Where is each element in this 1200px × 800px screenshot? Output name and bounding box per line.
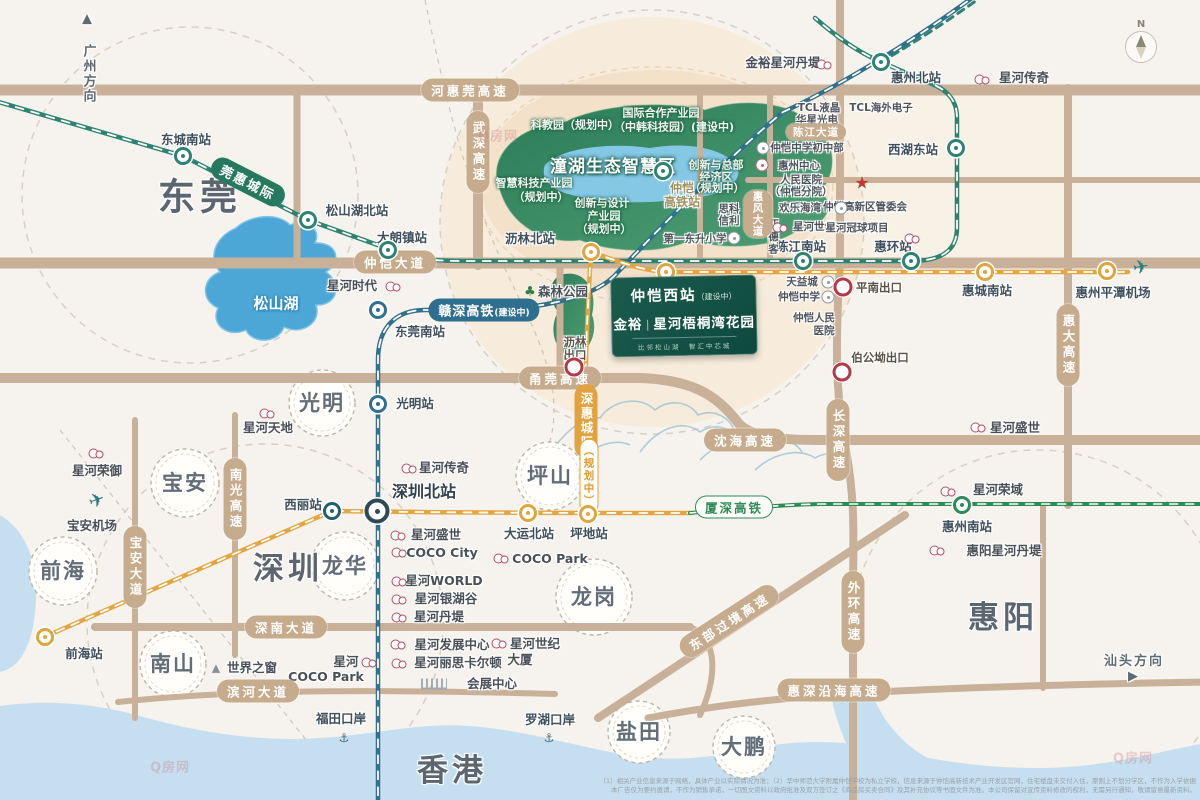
station-label-xihudong: 西湖东站: [888, 143, 938, 157]
poi-xinghe-coco-2: COCO Park: [288, 670, 364, 684]
xinghe-logo: [773, 222, 788, 233]
xinghe-logo: [362, 657, 377, 668]
city-longgang: 龙岗: [571, 585, 617, 609]
exit-dot-lilin: [565, 358, 584, 377]
songshan-lake: [205, 217, 336, 341]
poi-xinghe-chuanqi-top: 星河传奇: [999, 71, 1049, 85]
poi-xinghe-shidai: 星河时代: [327, 279, 377, 293]
city-pingshan: 坪山: [527, 464, 573, 488]
city-shenzhen: 深圳: [253, 552, 323, 588]
leisure-icon: [835, 202, 848, 215]
poi-zhongkai-renmin-2: 医院: [814, 325, 835, 337]
poi-hospital-3: （仲恺分院）: [770, 186, 833, 198]
poi-xinghe-rongyu: 星河荣御: [72, 464, 122, 478]
zone-intl-1: 国际合作产业园: [623, 108, 700, 121]
poi-diyi-dongsheng: 第一东升小学: [664, 233, 727, 245]
station-label-dongchengnan: 东城南站: [161, 133, 211, 147]
xinghe-logo: [392, 547, 407, 558]
road-hehuiwan-expwy: 河惠莞高速: [421, 79, 519, 102]
poi-xinghe-coco-1: 星河: [333, 655, 358, 669]
station-songshanhubei: [299, 211, 317, 229]
disclaimer-line2: 本广告仅为要约邀请，不作为销售承诺，一切图文资料以政府批准及双方签订之《商品房买…: [156, 786, 1196, 796]
station-dongchengnan: [174, 147, 192, 165]
xinghe-logo: [941, 486, 956, 497]
station-dayunbei: [519, 504, 537, 522]
school-icon: [757, 142, 770, 155]
station-guangming: [369, 395, 387, 413]
disclaimer: （1）相关产业信息来源于网络，具体产业以实际情况为准；（2）华中师范大学附属仲恺…: [156, 777, 1196, 797]
project-slogan: 比邻松山湖 智汇中芯城: [613, 339, 757, 352]
poi-huiyang-xinghe-danti: 惠阳星河丹堤: [966, 544, 1041, 558]
rail-ganshen-hsr: 赣深高铁(建设中): [428, 299, 539, 322]
station-huihuan: [902, 252, 920, 270]
poi-xinghe-tiandi: 星河天地: [243, 421, 293, 435]
zone-design-1: 创新与设计: [575, 198, 630, 211]
poi-forest-park: 森林公园: [538, 285, 588, 299]
poi-xinghe-shengshi-hz: 星河盛世: [990, 421, 1040, 435]
expo-building-icon: [421, 679, 447, 690]
label-luohu-port: 罗湖口岸: [525, 713, 575, 727]
xinghe-logo: [492, 638, 507, 649]
poi-xinghe-world: 星河WORLD: [405, 574, 482, 588]
city-longhua: 龙华: [322, 554, 368, 578]
xinghe-logo: [975, 74, 990, 85]
poi-xinghe-shiji-sz: 星河世纪: [510, 637, 560, 651]
xinghe-logo: [392, 576, 407, 587]
station-label-dayunbei: 大运北站: [504, 527, 554, 541]
poi-ritz-carlton: 星河丽思卡尔顿: [414, 656, 502, 670]
label-huizhou-pingtan-airport: 惠州平潭机场: [1075, 286, 1150, 300]
station-label-shenzhenbei: 深圳北站: [392, 483, 456, 501]
poi-expo-center: 会展中心: [467, 677, 517, 691]
xinghe-logo: [402, 463, 417, 474]
tree-icon: ♣: [524, 286, 536, 299]
station-label-huizhounan: 惠州南站: [942, 520, 992, 534]
road-huifeng-ave: 惠风大道: [744, 190, 773, 238]
station-xili: [323, 502, 341, 520]
watermark: Q房网: [150, 757, 190, 776]
poi-xinghe-yinhugu: 星河银湖谷: [415, 592, 478, 606]
poi-tianyicheng: 天益城: [786, 276, 818, 288]
road-changshen-expwy: 长深高速: [827, 399, 850, 481]
station-label-huichengnan: 惠城南站: [962, 284, 1012, 298]
station-label-zhongkai-hsr: 仲恺 高铁站: [664, 182, 700, 210]
station-chenjiangnan: [794, 252, 812, 270]
project-brand: 金裕星河梧桐湾花园: [612, 310, 756, 333]
project-station: 仲恺西站（建设中）: [611, 282, 755, 306]
road-binhe-ave: 滨河大道: [217, 680, 299, 703]
poi-huanle-haiwan: 欢乐海湾: [779, 202, 821, 214]
city-huiyang: 惠阳: [968, 601, 1038, 637]
xinghe-logo: [386, 281, 401, 292]
disclaimer-line1: （1）相关产业信息来源于网络，具体产业以实际情况为准；（2）华中师范大学附属仲恺…: [156, 777, 1196, 787]
poi-baoan-airport: 宝安机场: [67, 519, 117, 533]
poi-window-of-world: 世界之窗: [227, 661, 277, 675]
zone-design-2: 产业园: [588, 211, 621, 224]
exit-bogongao: 伯公坳出口: [851, 351, 909, 364]
poi-zhongkai-middle-school-junior: 仲恺中学初中部: [770, 142, 844, 154]
xinghe-logo: [260, 408, 275, 419]
poi-xinghe-chuanqi-mid: 星河传奇: [419, 461, 469, 475]
poi-xinghe-shengshi-sz: 星河盛世: [411, 528, 461, 542]
poi-xinghe-guanqiu: 星河冠球项目: [826, 222, 889, 234]
road-wushen-expwy: 武深高速: [467, 111, 490, 193]
station-dongguannan: [369, 301, 387, 319]
zone-design-3: （规划中）: [577, 224, 632, 237]
city-dapeng: 大鹏: [721, 735, 767, 759]
poi-hospital-1: 惠州中心: [778, 160, 820, 172]
xinghe-logo: [905, 233, 920, 244]
location-map: ▲广州方向汕头方向 ▶东莞深圳惠阳香港光明宝安龙华前海南山坪山龙岗盐田大鹏松山湖…: [0, 0, 1200, 800]
poi-coco-city: COCO City: [406, 546, 478, 560]
road-baoan-ave: 宝安大道: [124, 526, 147, 608]
poi-tcl-overseas: TCL海外电子: [849, 102, 913, 114]
station-lilinbei: [582, 243, 600, 261]
road-huishen-yanhai-expwy: 惠深沿海高速: [777, 679, 890, 702]
poi-xinghe-danti: 星河丹堤: [414, 610, 464, 624]
poi-coco-park-longgang: COCO Park: [512, 552, 588, 566]
label-futian-port: 福田口岸: [316, 712, 366, 726]
road-nanguang-expwy: 南光高速: [224, 458, 247, 540]
city-baoan: 宝安: [162, 471, 208, 495]
poi-jinyu-xinghe-danti: 金裕星河丹堤: [745, 56, 820, 70]
xinghe-logo: [817, 59, 832, 70]
compass: N: [1124, 19, 1158, 65]
station-huizhoubei: [872, 53, 890, 71]
road-waihuan-expwy: 外环高速: [842, 571, 865, 653]
school-icon: [728, 232, 741, 245]
station-label-pingdi: 坪地站: [570, 527, 608, 541]
exit-dot-bogongao: [833, 363, 852, 382]
govt-star-icon: ★: [854, 176, 869, 193]
station-label-huizhoubei: 惠州北站: [891, 71, 941, 85]
xinghe-logo: [391, 639, 406, 650]
pagoda-icon: ▲: [212, 663, 220, 674]
hospital-icon: [756, 159, 769, 172]
poi-sike: 思科: [719, 203, 740, 215]
station-huizhounan: [953, 496, 971, 514]
xinghe-logo: [391, 530, 406, 541]
zone-intl-2: （中韩科技园）(建设中): [614, 122, 734, 135]
poi-tcl-1: TCL液晶: [798, 102, 841, 114]
station-label-qianhai: 前海站: [65, 647, 103, 661]
station-label-dongguannan: 东莞南站: [395, 325, 445, 339]
project-card: 仲恺西站（建设中） 金裕星河梧桐湾花园 比邻松山湖 智汇中芯城: [610, 274, 758, 357]
station-qianhai: [36, 628, 54, 646]
plane-icon: ✈: [1132, 257, 1151, 278]
anchor-icon: ⚓: [544, 732, 555, 744]
compass-dial: [1125, 31, 1157, 63]
city-qianhai: 前海: [40, 559, 86, 583]
road-huida-expwy: 惠大高速: [1057, 304, 1080, 386]
poi-zhongkai-middle-school: 仲恺中学: [778, 291, 820, 303]
poi-zhongkai-renmin-1: 仲恺人民: [793, 312, 835, 324]
station-dalangzhen: [379, 241, 397, 259]
anchor-icon: ⚓: [339, 732, 350, 744]
watermark: Q房网: [1113, 748, 1153, 767]
road-shennan-ave: 深南大道: [245, 616, 327, 639]
poi-xinli: 信利: [719, 215, 740, 227]
exit-pingnan: 平南出口: [856, 281, 902, 294]
station-airport: [1098, 262, 1116, 280]
xinghe-logo: [89, 448, 104, 459]
watermark: Q房网: [478, 126, 518, 145]
dir-guangzhou: 广州方向: [80, 44, 95, 104]
rail-shenhui-status: （规划中）: [580, 439, 599, 514]
city-nanshan: 南山: [150, 652, 196, 676]
station-xihudong: [947, 139, 965, 157]
city-yantian: 盐田: [616, 720, 662, 744]
poi-dasha: 大厦: [507, 653, 532, 667]
station-label-guangming: 光明站: [396, 397, 434, 411]
poi-xinghe-rongyu-hz: 星河荣域: [973, 483, 1023, 497]
project-station-status: （建设中）: [697, 292, 737, 302]
station-label-lilinbei: 沥林北站: [505, 232, 555, 246]
xinghe-logo: [392, 594, 407, 605]
exit-dot-pingnan: [834, 278, 853, 297]
school-icon: [822, 291, 835, 304]
xinghe-logo: [971, 422, 986, 433]
road-shenhai-expwy: 沈海高速: [704, 429, 786, 452]
station-label-songshanhubei: 松山湖北站: [326, 204, 389, 218]
xinghe-logo: [494, 553, 509, 564]
city-guangming: 光明: [299, 391, 345, 415]
station-tonghu: [654, 162, 672, 180]
rail-xiashen-hsr: 厦深高铁: [695, 496, 773, 519]
xinghe-logo: [392, 612, 407, 623]
compass-north-label: N: [1124, 19, 1158, 30]
xinghe-logo: [392, 658, 407, 669]
poi-hospital-2: 人民医院: [780, 174, 822, 186]
road-chenjiang-ave: 陈江大道: [786, 124, 846, 141]
station-shenzhenbei: [365, 499, 390, 524]
zone-kejiaoyuan: 科教园（规划中）: [531, 120, 619, 133]
zone-smart-tech-2: （规划中）: [514, 192, 569, 205]
poi-xinghe-fazhan: 星河发展中心: [414, 638, 489, 652]
zone-smart-tech-1: 智慧科技产业园: [496, 178, 573, 191]
xinghe-logo: [930, 545, 945, 556]
dir-guangzhou-arrow: ▲: [82, 13, 94, 28]
station-pingdi: [579, 505, 597, 523]
station-huichengnan: [976, 263, 994, 281]
station-label-xili: 西丽站: [284, 498, 322, 512]
dir-shantou: 汕头方向 ▶: [1101, 655, 1167, 685]
lake-songshanhu: 松山湖: [253, 295, 298, 312]
